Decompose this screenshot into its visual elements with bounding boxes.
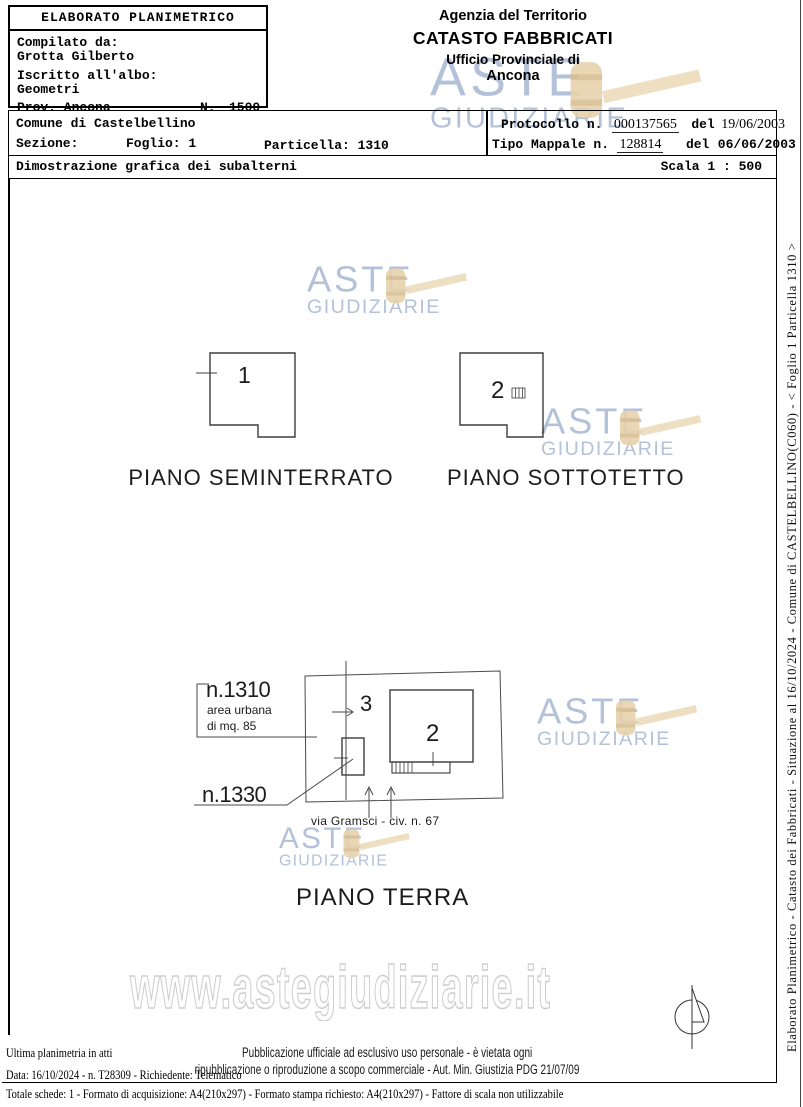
footer-pubblicazione-text2: ripubblicazione o riproduzione a scopo c…	[195, 1062, 580, 1077]
unit-2-sottotetto-label: 2	[491, 377, 504, 405]
footer-pubblicazione-text1: Pubblicazione ufficiale ad esclusivo uso…	[242, 1045, 532, 1060]
footer-data-row: Data: 16/10/2024 - n. T28309 - Richieden…	[6, 1068, 242, 1083]
parcel-1310-label: n.1310	[206, 677, 270, 703]
floorplan-drawing	[0, 0, 803, 1107]
footer-pubblicazione-line1: Pubblicazione ufficiale ad esclusivo uso…	[0, 1044, 775, 1062]
footer-totale-row: Totale schede: 1 - Formato di acquisizio…	[6, 1087, 563, 1102]
north-arrow-icon	[675, 985, 709, 1049]
street-label: via Gramsci - civ. n. 67	[311, 814, 439, 828]
piano-seminterrato-title: PIANO SEMINTERRATO	[128, 465, 394, 491]
unit-3-label: 3	[360, 691, 372, 717]
cadastral-document-page: ELABORATO PLANIMETRICO Compilato da: Gro…	[0, 0, 803, 1107]
mq-note: di mq. 85	[207, 719, 256, 733]
side-margin-note: Elaborato Planimetrico - Catasto dei Fab…	[785, 152, 800, 1052]
unit-1-label: 1	[238, 362, 251, 389]
area-urbana-note: area urbana	[207, 703, 272, 717]
piano-sottotetto-title: PIANO SOTTOTETTO	[447, 465, 669, 491]
parcel-1330-label: n.1330	[202, 782, 266, 808]
unit-2-terra-label: 2	[426, 720, 439, 748]
piano-terra-title: PIANO TERRA	[296, 884, 444, 912]
